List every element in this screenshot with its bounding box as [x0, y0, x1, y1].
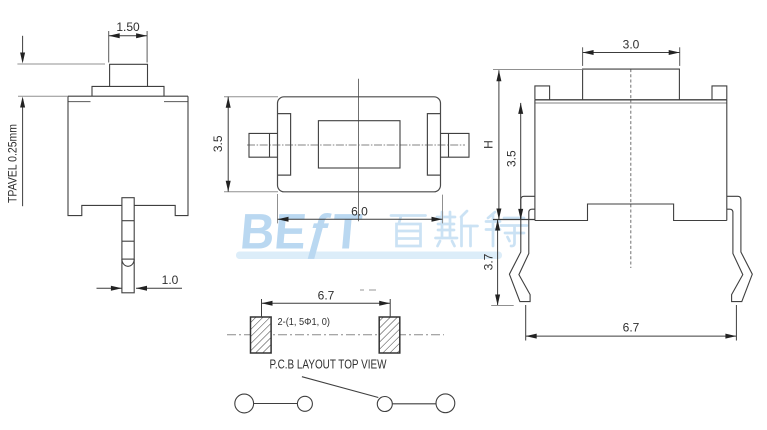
svg-text:BEƒT: BEƒT: [238, 204, 364, 260]
svg-text:3.5: 3.5: [211, 135, 225, 152]
svg-text:2-(1, 5Φ1, 0): 2-(1, 5Φ1, 0): [278, 316, 331, 328]
svg-text:P.C.B LAYOUT TOP VIEW: P.C.B LAYOUT TOP VIEW: [270, 357, 388, 372]
svg-text:TPAVEL 0.25mm: TPAVEL 0.25mm: [8, 124, 20, 203]
svg-text:6.7: 6.7: [318, 289, 335, 303]
svg-text:6.7: 6.7: [623, 321, 640, 335]
svg-text:1.50: 1.50: [116, 20, 140, 34]
svg-text:H: H: [482, 140, 496, 149]
svg-text:3.0: 3.0: [623, 38, 640, 52]
svg-text:3.7: 3.7: [482, 253, 496, 270]
svg-text:6.0: 6.0: [351, 205, 368, 219]
svg-text:1.0: 1.0: [162, 273, 179, 287]
svg-text:3.5: 3.5: [505, 150, 519, 167]
